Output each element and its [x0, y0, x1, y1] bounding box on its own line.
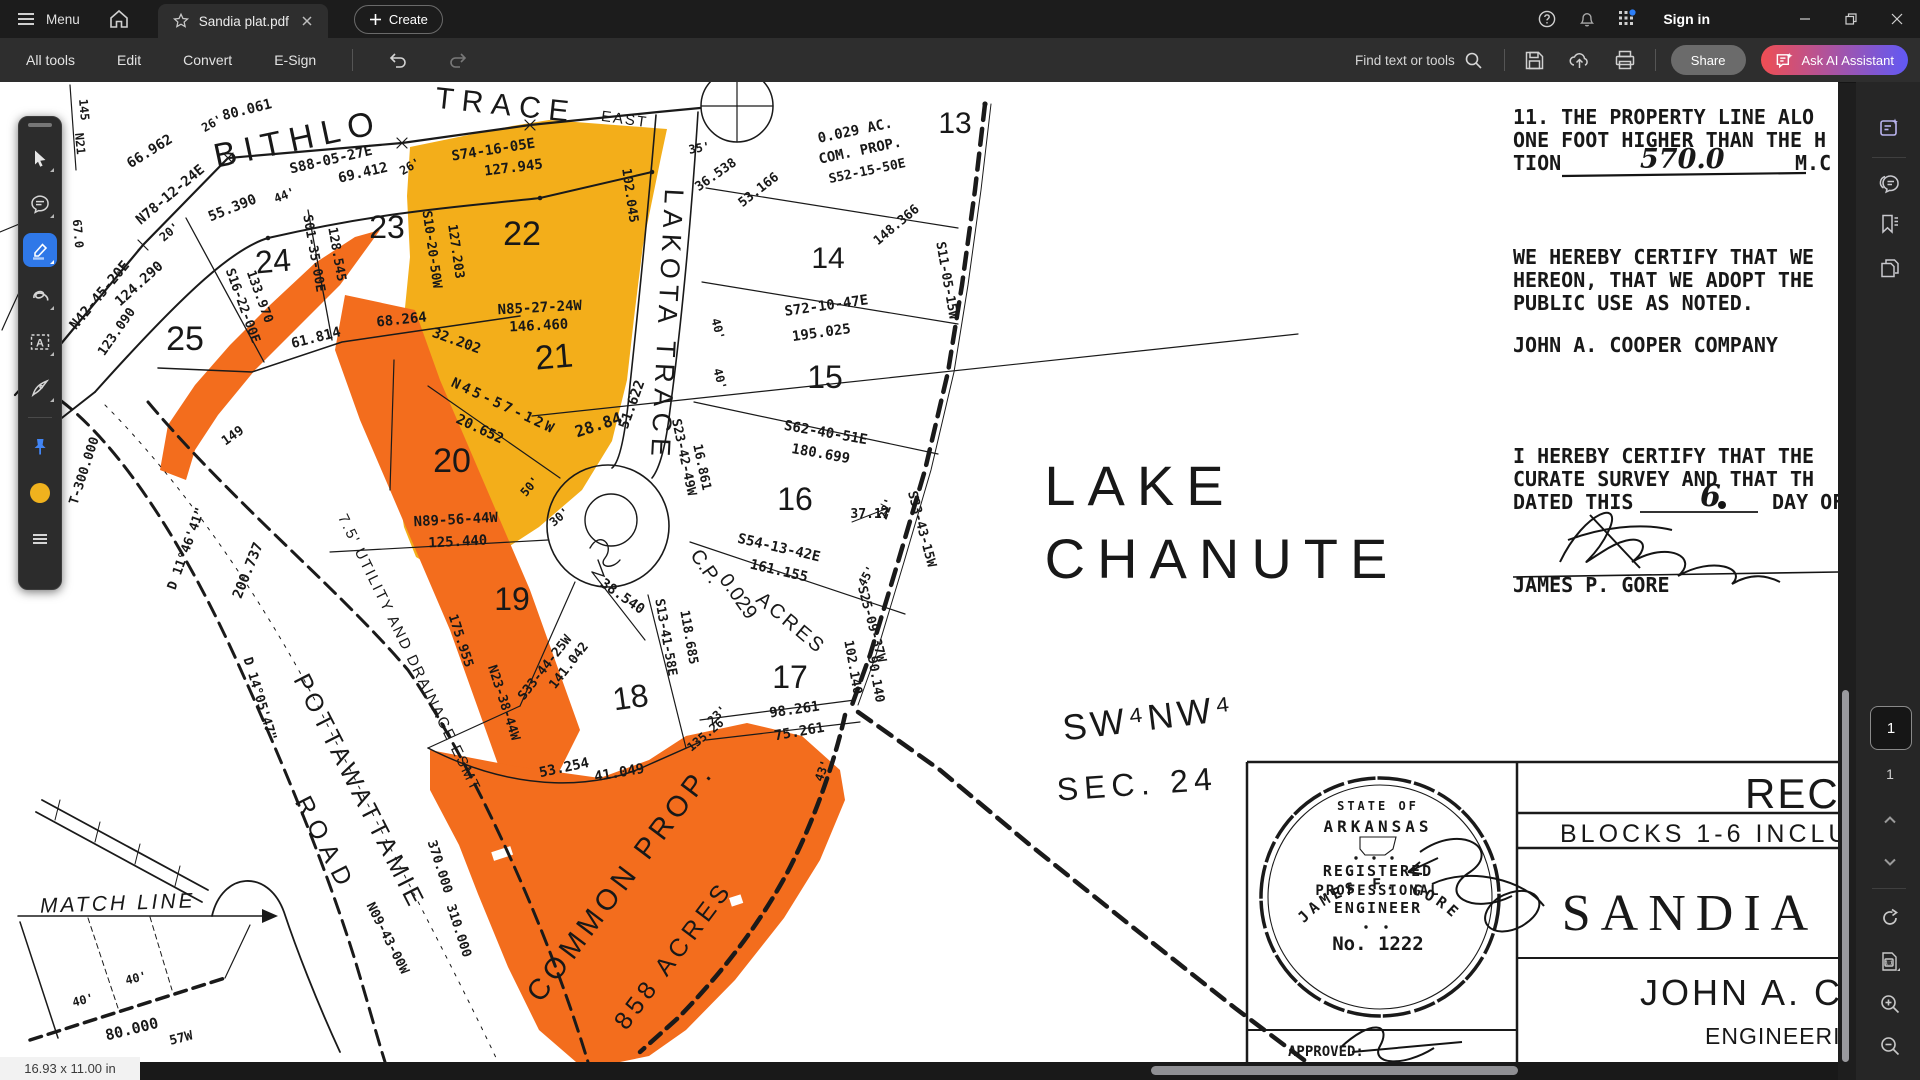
plat-label: DATED THIS — [1513, 490, 1633, 514]
plat-label: 18 — [610, 677, 650, 718]
plat-label: 14 — [811, 242, 844, 275]
tab-close-button[interactable] — [298, 12, 316, 30]
current-page-input[interactable]: 1 — [1870, 706, 1912, 750]
app-menu-button[interactable] — [12, 5, 40, 33]
pin-icon — [30, 437, 50, 457]
comment-tool-button[interactable] — [23, 187, 57, 221]
plat-label: 148.366 — [871, 202, 923, 249]
pages-panel-button[interactable] — [1878, 256, 1902, 280]
close-icon — [300, 14, 314, 28]
plat-label: TION — [1513, 151, 1561, 175]
highlight-tool-button[interactable] — [23, 233, 57, 267]
plat-label: POTTAWATTAMIE — [288, 669, 431, 913]
fountain-pen-icon — [29, 377, 51, 399]
vertical-scrollbar[interactable] — [1842, 690, 1849, 1062]
pages-icon — [1878, 256, 1902, 280]
plat-label: 19 — [494, 581, 530, 617]
redo-button[interactable] — [443, 45, 473, 75]
plat-label: D 14°05'47" — [240, 656, 280, 743]
plat-label: S25-09-37W — [854, 584, 889, 664]
add-text-tool-button[interactable]: A — [23, 325, 57, 359]
plat-label: 80.000 — [103, 1014, 160, 1045]
chevron-up-icon — [1881, 811, 1899, 829]
upload-cloud-button[interactable] — [1564, 45, 1595, 76]
apps-grid-button[interactable] — [1607, 5, 1647, 33]
page-dimensions-badge: 16.93 x 11.00 in — [0, 1057, 140, 1080]
toolbar-divider — [28, 417, 52, 418]
plat-label: RECO — [1745, 770, 1838, 817]
plat-label: 200.737 — [230, 540, 267, 601]
bell-icon — [1577, 9, 1597, 29]
plat-label: 40' — [71, 991, 95, 1010]
plat-label: S13-41-58E — [651, 598, 679, 678]
undo-icon — [387, 49, 409, 71]
plat-label: I HEREBY CERTIFY THAT THE — [1513, 444, 1814, 468]
plat-label: M.C — [1795, 151, 1831, 175]
plat-label: 66.962 — [124, 131, 175, 171]
ask-ai-label: Ask AI Assistant — [1802, 53, 1895, 68]
plat-label: 0.029 — [715, 570, 762, 624]
comments-icon — [1878, 172, 1902, 196]
chevron-down-icon — [1881, 853, 1899, 871]
pdf-page-canvas[interactable]: BITHLOTRACEEASTLAKOTA TRACELAKECHANUTESW… — [0, 82, 1838, 1062]
plat-labels: BITHLOTRACEEASTLAKOTA TRACELAKECHANUTESW… — [28, 82, 1838, 1060]
title-bar: Menu Sandia plat.pdf Create Sign in — [0, 0, 1920, 38]
plat-label: 570.0 — [1640, 144, 1725, 175]
search-icon — [1464, 51, 1483, 70]
plat-label: 55.390 — [206, 191, 259, 225]
quick-tools-toolbar: A — [18, 116, 62, 590]
highlighter-icon — [30, 240, 50, 260]
plat-label: SEC. 24 — [1056, 760, 1219, 807]
plat-label: WE HEREBY CERTIFY THAT WE — [1513, 245, 1814, 269]
undo-button[interactable] — [383, 45, 413, 75]
toolbar-menu-button[interactable] — [23, 522, 57, 556]
plat-label: ENGINEER — [1334, 899, 1422, 917]
plat-label: S72-10-47E — [784, 292, 870, 320]
rail-divider — [1872, 888, 1906, 889]
plat-label: SANDIA — [1562, 885, 1818, 942]
fill-sign-tool-button[interactable] — [23, 371, 57, 405]
plat-label: 16 — [777, 481, 813, 517]
create-label: Create — [389, 12, 428, 27]
plat-label: N09-43-00W — [363, 900, 412, 977]
separator — [1504, 49, 1505, 71]
plat-label: APPROVED: — [1288, 1044, 1364, 1060]
plat-label: D 11°46'41" — [165, 506, 209, 592]
plat-label: 370.000 — [424, 839, 455, 896]
plat-label: DAY OF — [1772, 490, 1838, 514]
plat-label: LAKE — [1044, 454, 1235, 517]
comment-bubble-icon — [29, 193, 51, 215]
color-dot-yellow — [30, 483, 50, 503]
plat-label: 145 — [76, 98, 92, 121]
plat-label: 195.025 — [791, 321, 852, 345]
plat-label: 80.061 — [221, 96, 274, 124]
home-button[interactable] — [104, 4, 134, 34]
zoom-out-icon — [1879, 1035, 1901, 1057]
save-icon — [1524, 50, 1545, 71]
plat-label: 146.460 — [509, 316, 569, 335]
tab-title: Sandia plat.pdf — [199, 14, 289, 29]
hamburger-icon — [16, 9, 36, 29]
plat-label: 180.699 — [790, 441, 851, 467]
print-button[interactable] — [1610, 45, 1640, 75]
plat-label: 67.0 — [70, 219, 86, 249]
find-button[interactable]: Find text or tools — [1349, 50, 1489, 71]
plat-label: 20 — [433, 442, 471, 480]
plat-label: 11. THE PROPERTY LINE ALO — [1513, 105, 1814, 129]
notifications-button[interactable] — [1567, 5, 1607, 33]
plat-label: TRACE — [434, 82, 578, 129]
plat-label: 125.440 — [428, 532, 488, 551]
plat-label: 21 — [534, 336, 575, 377]
plat-label: JOHN A. CO — [1640, 972, 1838, 1013]
plat-label: 36.538 — [692, 155, 739, 194]
tab-convert[interactable]: Convert — [177, 51, 238, 69]
plat-label: 26' — [199, 112, 225, 135]
previous-page-button[interactable] — [1878, 808, 1902, 832]
actual-size-icon: 1:1 — [1878, 950, 1902, 974]
hamburger-icon — [30, 529, 50, 549]
rotate-clockwise-icon — [1879, 907, 1901, 929]
plat-label: 53.166 — [736, 170, 782, 211]
plat-label: PUBLIC USE AS NOTED. — [1513, 291, 1754, 315]
separator — [352, 49, 353, 71]
horizontal-scrollbar-track[interactable] — [0, 1062, 1838, 1080]
home-icon — [108, 8, 130, 30]
tab-edit[interactable]: Edit — [111, 51, 147, 69]
tools-bar: All tools Edit Convert E-Sign Find text … — [0, 38, 1920, 83]
plat-label: 102.140 — [840, 639, 864, 696]
svg-text:1:1: 1:1 — [1885, 961, 1893, 967]
highlight-color-swatch[interactable] — [23, 476, 57, 510]
ai-assistant-icon — [1775, 51, 1794, 70]
cloud-upload-icon — [1568, 49, 1591, 72]
plat-label: CHANUTE — [1045, 527, 1400, 590]
help-button[interactable] — [1527, 5, 1567, 33]
plat-label: 98.261 — [768, 699, 820, 722]
plat-label: 57W — [168, 1028, 195, 1048]
total-pages-label: 1 — [1870, 766, 1910, 782]
window-close-button[interactable] — [1874, 0, 1920, 38]
plat-label: T-300.000 — [67, 435, 103, 507]
plat-label: S11-05-15W — [932, 241, 960, 321]
plat-label: 40' — [124, 969, 148, 988]
select-tool-button[interactable] — [23, 141, 57, 175]
plat-label: 17 — [772, 659, 808, 695]
svg-text:A: A — [36, 338, 44, 350]
plat-label: BLOCKS 1-6 INCLUS — [1560, 820, 1838, 848]
plat-label: JOHN A. COOPER COMPANY — [1513, 333, 1778, 357]
plat-label: 35' — [687, 139, 711, 157]
plat-label: HEREON, THAT WE ADOPT THE — [1513, 268, 1814, 292]
plat-label: 118.685 — [676, 609, 700, 666]
cursor-icon — [30, 148, 50, 168]
star-icon — [172, 12, 190, 30]
sign-in-button[interactable]: Sign in — [1657, 10, 1716, 28]
horizontal-scrollbar-thumb[interactable] — [1151, 1066, 1518, 1075]
plat-label: 22 — [503, 215, 541, 253]
plat-label: ENGINEERING — [1705, 1023, 1838, 1049]
ask-ai-assistant-button[interactable]: Ask AI Assistant — [1761, 45, 1909, 75]
plat-label: 20' — [157, 220, 183, 245]
apps-grid-icon — [1617, 9, 1637, 29]
plat-label: STATE OF — [1337, 799, 1419, 813]
plat-label: 61.814 — [290, 324, 343, 352]
notification-dot — [1629, 9, 1636, 16]
page-dimensions-label: 16.93 x 11.00 in — [24, 1061, 116, 1076]
restore-icon — [1845, 13, 1857, 25]
text-box-icon: A — [29, 331, 51, 353]
separator — [1655, 49, 1656, 71]
plat-label: 149 — [219, 423, 247, 449]
plat-label: 25 — [166, 320, 204, 358]
plat-label: S54-13-42E — [736, 531, 822, 566]
share-button[interactable]: Share — [1671, 45, 1746, 75]
plat-label: 6 — [1700, 479, 1721, 514]
freeform-draw-icon — [29, 285, 51, 307]
plat-label: MATCH LINE — [40, 889, 196, 917]
plat-label: 22' — [876, 496, 897, 521]
plat-label: 40' — [708, 317, 727, 342]
ai-assistant-panel-icon — [1878, 116, 1902, 140]
bookmark-icon — [1878, 212, 1902, 236]
rotate-page-button[interactable] — [1878, 906, 1902, 930]
minimize-icon — [1799, 13, 1811, 25]
bookmarks-panel-button[interactable] — [1878, 212, 1902, 236]
comments-panel-button[interactable] — [1878, 172, 1902, 196]
pin-toolbar-button[interactable] — [23, 430, 57, 464]
save-button[interactable] — [1520, 46, 1549, 75]
ai-assistant-panel-button[interactable] — [1878, 116, 1902, 140]
right-panel-rail: 1 1 1:1 — [1856, 82, 1920, 1080]
window-minimize-button[interactable] — [1782, 0, 1828, 38]
plat-label: N21 — [72, 132, 88, 155]
actual-size-button[interactable]: 1:1 — [1878, 950, 1902, 974]
plat-label: No. 1222 — [1332, 933, 1424, 955]
close-icon — [1891, 13, 1903, 25]
next-page-button[interactable] — [1878, 850, 1902, 874]
plat-label: 15 — [807, 359, 843, 395]
draw-tool-button[interactable] — [23, 279, 57, 313]
create-button[interactable]: Create — [354, 5, 443, 34]
plat-label: JAMES P. GORE — [1513, 573, 1670, 597]
plat-label: 23 — [369, 209, 405, 245]
current-page-value: 1 — [1887, 720, 1895, 737]
window-restore-button[interactable] — [1828, 0, 1874, 38]
plat-label: ARKANSAS — [1323, 817, 1432, 836]
zoom-in-icon — [1879, 993, 1901, 1015]
plat-label: ROAD — [289, 792, 361, 898]
toolbar-drag-handle[interactable] — [28, 123, 52, 127]
help-icon — [1537, 9, 1557, 29]
zoom-out-button[interactable] — [1878, 1034, 1902, 1058]
plat-label: 13 — [938, 107, 971, 140]
rail-divider — [1872, 157, 1906, 158]
zoom-in-button[interactable] — [1878, 992, 1902, 1016]
find-label: Find text or tools — [1355, 53, 1455, 68]
plat-label: SW⁴NW⁴ — [1060, 687, 1237, 749]
plat-label: 44' — [272, 185, 297, 206]
tab-esign[interactable]: E-Sign — [268, 51, 322, 69]
plat-label: ACRES — [752, 588, 830, 659]
menu-label[interactable]: Menu — [46, 12, 80, 27]
plus-icon — [369, 13, 382, 26]
plat-label: 40' — [710, 367, 729, 392]
redo-icon — [447, 49, 469, 71]
document-tab[interactable]: Sandia plat.pdf — [158, 4, 328, 38]
plat-label: CURATE SURVEY AND THAT TH — [1513, 467, 1814, 491]
printer-icon — [1614, 49, 1636, 71]
plat-label: 310.000 — [443, 903, 474, 960]
tab-all-tools[interactable]: All tools — [20, 51, 81, 69]
